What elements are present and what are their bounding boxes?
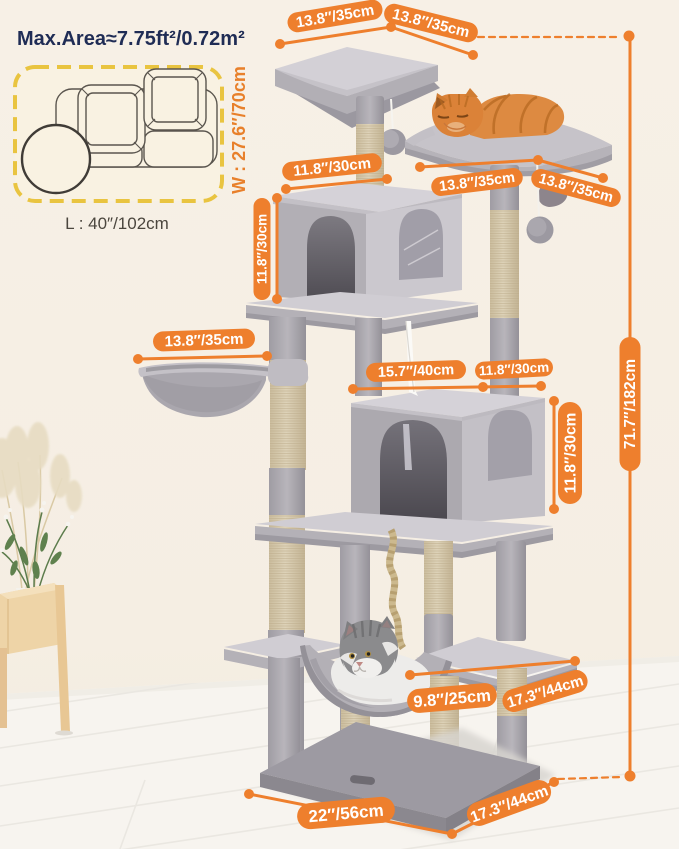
svg-text:11.8″/30cm: 11.8″/30cm bbox=[563, 413, 580, 494]
svg-text:71.7″/182cm: 71.7″/182cm bbox=[622, 359, 639, 449]
svg-text:Max.Area≈7.75ft²/0.72m²: Max.Area≈7.75ft²/0.72m² bbox=[17, 28, 245, 50]
svg-text:L : 40″/102cm: L : 40″/102cm bbox=[65, 214, 169, 233]
svg-text:W : 27.6″/70cm: W : 27.6″/70cm bbox=[229, 66, 249, 194]
svg-text:13.8″/35cm: 13.8″/35cm bbox=[164, 331, 243, 351]
svg-text:15.7″/40cm: 15.7″/40cm bbox=[378, 362, 455, 381]
svg-text:11.8″/30cm: 11.8″/30cm bbox=[255, 214, 270, 284]
